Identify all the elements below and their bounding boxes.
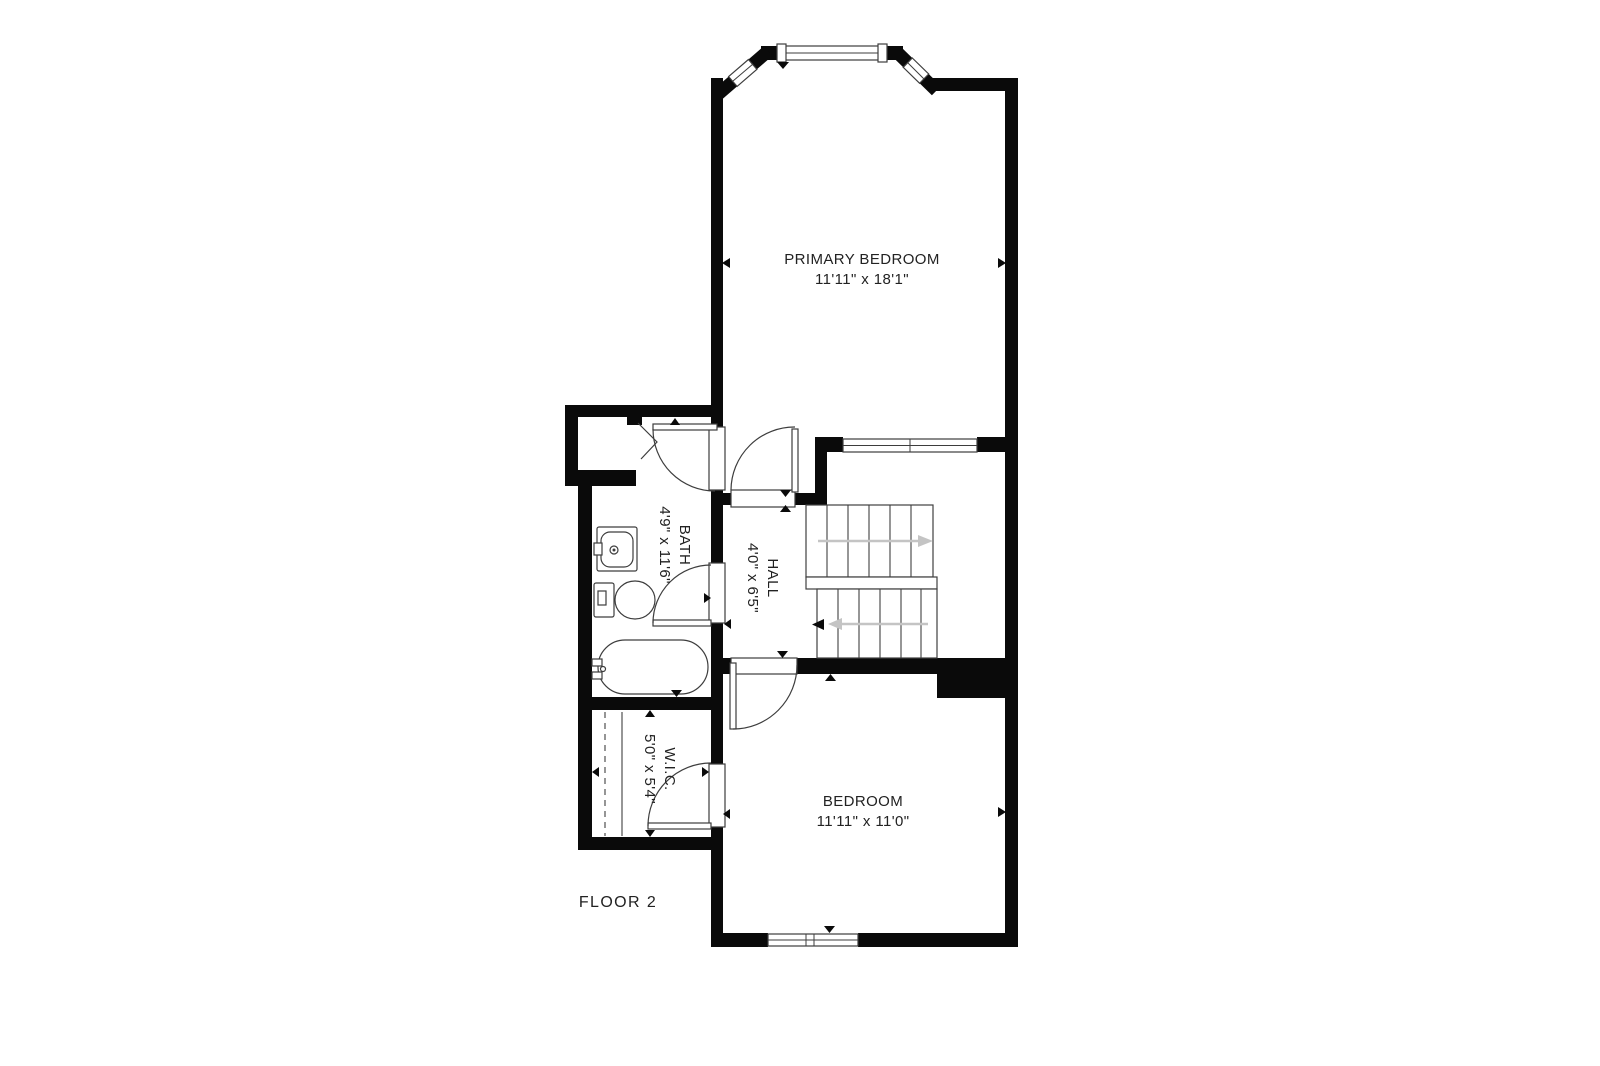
interior-window [843, 439, 977, 452]
bedroom-door [730, 658, 797, 729]
bath-label: BATH 4'9" x 11'6" [654, 506, 694, 584]
wic-name: W.I.C. [659, 734, 679, 804]
hall-name: HALL [762, 543, 782, 613]
floor-plan-page: PRIMARY BEDROOM 11'11" x 18'1" BATH 4'9"… [0, 0, 1600, 1066]
bath-name: BATH [674, 506, 694, 584]
primary-bedroom-door [731, 427, 798, 507]
floor-plan-drawing [0, 0, 1600, 1066]
staircase [806, 505, 937, 658]
bathtub [592, 640, 708, 694]
closet-interior [605, 712, 622, 836]
bath-dimensions: 4'9" x 11'6" [654, 506, 674, 584]
primary-bedroom-dimensions: 11'11" x 18'1" [784, 270, 939, 290]
hall-label: HALL 4'0" x 6'5" [742, 543, 782, 613]
floor-label: FLOOR 2 [579, 894, 657, 912]
primary-bedroom-name: PRIMARY BEDROOM [784, 250, 939, 270]
wic-dimensions: 5'0" x 5'4" [639, 734, 659, 804]
bedroom-dimensions: 11'11" x 11'0" [817, 812, 910, 832]
stairs-upper-flight [806, 505, 933, 577]
bedroom-label: BEDROOM 11'11" x 11'0" [817, 792, 910, 832]
stair-landing [806, 577, 937, 589]
bedroom-name: BEDROOM [817, 792, 910, 812]
stairs-lower-flight [812, 589, 937, 658]
bath-door-from-primary [638, 423, 725, 491]
toilet [594, 581, 655, 619]
wic-label: W.I.C. 5'0" x 5'4" [639, 734, 679, 804]
bedroom-window [768, 934, 858, 946]
hall-dimensions: 4'0" x 6'5" [742, 543, 762, 613]
sink-vanity [594, 527, 637, 571]
primary-bedroom-label: PRIMARY BEDROOM 11'11" x 18'1" [784, 250, 939, 290]
